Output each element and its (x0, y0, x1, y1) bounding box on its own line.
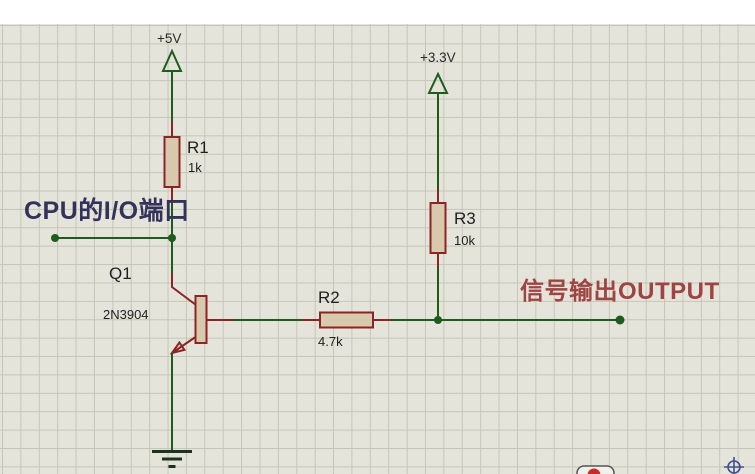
q1-value-label[interactable]: 2N3904 (103, 307, 149, 322)
component-q1[interactable]: Q1 2N3904 (103, 264, 233, 353)
r3-body[interactable] (431, 203, 446, 253)
schematic-canvas: +5V R1 1k CPU的I/O端口 Q1 2N3904 (0, 0, 755, 474)
power-arrow-icon[interactable] (429, 74, 447, 93)
origin-marker-icon (724, 457, 744, 474)
component-r3[interactable]: R3 10k (431, 189, 476, 268)
power-3v3-label[interactable]: +3.3V (420, 50, 456, 65)
r2-ref-label[interactable]: R2 (318, 288, 340, 307)
component-r1[interactable]: R1 1k (165, 121, 209, 204)
q1-base-bar[interactable] (196, 296, 207, 343)
r2-body[interactable] (320, 313, 373, 328)
r1-value-label[interactable]: 1k (188, 160, 202, 175)
r1-ref-label[interactable]: R1 (187, 138, 209, 157)
r3-value-label[interactable]: 10k (454, 233, 475, 248)
power-terminal-3v3[interactable]: +3.3V (420, 50, 456, 93)
cpu-io-wire[interactable] (51, 234, 176, 242)
input-annotation[interactable]: CPU的I/O端口 (24, 196, 190, 225)
ground-symbol[interactable] (152, 452, 192, 467)
component-r2[interactable]: R2 4.7k (302, 288, 391, 349)
r3-ref-label[interactable]: R3 (454, 209, 476, 228)
output-annotation[interactable]: 信号输出OUTPUT (520, 277, 720, 305)
power-terminal-5v[interactable]: +5V (157, 31, 181, 71)
terminal-dot-cpu-io[interactable] (51, 234, 59, 242)
power-5v-label[interactable]: +5V (157, 31, 181, 46)
junction-dot-collector (168, 234, 176, 242)
q1-collector-lead[interactable] (172, 273, 196, 305)
q1-ref-label[interactable]: Q1 (109, 264, 132, 283)
r2-value-label[interactable]: 4.7k (318, 334, 343, 349)
terminal-dot-output[interactable] (616, 316, 625, 325)
watermark-logo-partial (577, 466, 614, 474)
r1-body[interactable] (165, 137, 180, 187)
power-arrow-icon[interactable] (163, 51, 181, 71)
